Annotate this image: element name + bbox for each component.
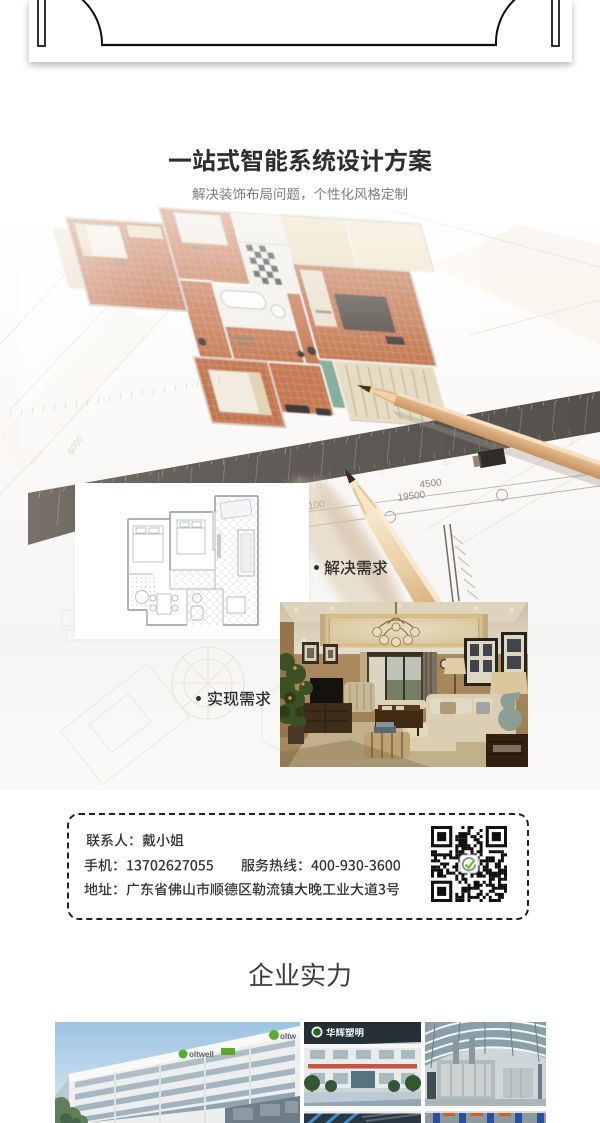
svg-text:oltwell: oltwell [189, 1050, 214, 1059]
svg-text:oltw: oltw [280, 1032, 297, 1041]
